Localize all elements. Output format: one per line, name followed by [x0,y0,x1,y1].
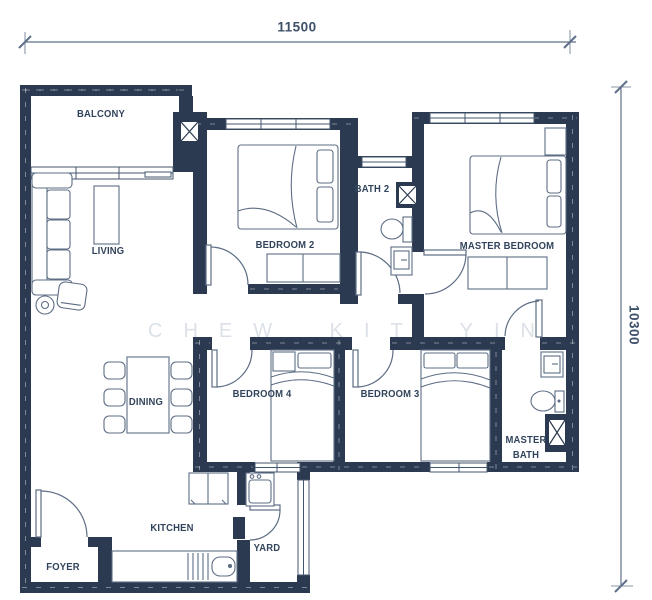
bedroom4-bed [271,350,334,461]
room-label-dining: DINING [129,396,163,408]
room-label-bedroom4: BEDROOM 4 [233,388,292,400]
room-label-living: LIVING [92,245,125,257]
room-label-master-bath-line1: MASTER [506,433,547,448]
wall-bedroom2-left [193,118,207,294]
wall-bath2-bottom-stub [398,294,412,304]
yard-door [250,505,280,540]
bedroom3-door [353,350,393,387]
master-wardrobe [468,257,547,289]
bedroom4-window [255,463,300,472]
x-column-balcony-icon [181,122,198,141]
master-bedroom-door [424,250,466,294]
master-bedside-table [545,128,566,155]
dimension-width-label: 11500 [277,20,316,35]
sofa [32,173,72,295]
floor-plan-canvas: CHEW KIT YIN [0,0,652,600]
bedroom2-window [226,119,330,129]
bath2-toilet [381,217,412,242]
room-label-yard: YARD [254,542,281,554]
floor-plan-drawing [0,0,652,600]
room-label-foyer: FOYER [46,561,79,573]
bedroom2-door [206,245,248,285]
master-bath-toilet [531,391,564,412]
room-label-master-bath: MASTER BATH [506,433,547,463]
room-label-kitchen: KITCHEN [150,522,193,534]
room-label-master-bedroom: MASTER BEDROOM [460,240,554,252]
bath2-window [362,157,406,167]
room-label-bath2: BATH 2 [355,183,390,195]
yard-window [298,480,309,575]
master-bed [470,156,566,234]
master-bedroom-window [430,113,534,123]
room-label-master-bath-line2: BATH [506,448,547,463]
washing-machine [246,473,274,506]
bedroom2-cabinet [267,254,340,282]
master-bath-door [505,300,542,337]
bedroom3-bed [421,350,490,461]
kitchen-counter [112,551,237,582]
wall-foyer-horizontal [88,537,112,547]
x-column-bath2-icon [399,186,416,204]
wall-bedroom2-right [340,118,358,304]
side-table [36,296,54,314]
entry-door [36,490,87,537]
master-bath-sink [541,352,563,377]
wall-kitchen-block [233,517,245,539]
wall-foyer-stub [31,537,41,547]
bedroom2-bed [238,145,338,229]
bedroom4-door [212,350,252,387]
tv-console [94,186,119,244]
dimension-height-label: 10300 [627,305,642,345]
fridge [189,473,228,504]
room-label-bedroom3: BEDROOM 3 [361,388,420,400]
room-label-bedroom2: BEDROOM 2 [256,239,315,251]
room-label-balcony: BALCONY [77,108,125,120]
armchair [56,281,87,311]
bedroom3-window [430,463,487,472]
bath2-sink [391,247,412,275]
x-column-masterbath-icon [549,420,565,445]
dining-table-set [104,357,192,433]
